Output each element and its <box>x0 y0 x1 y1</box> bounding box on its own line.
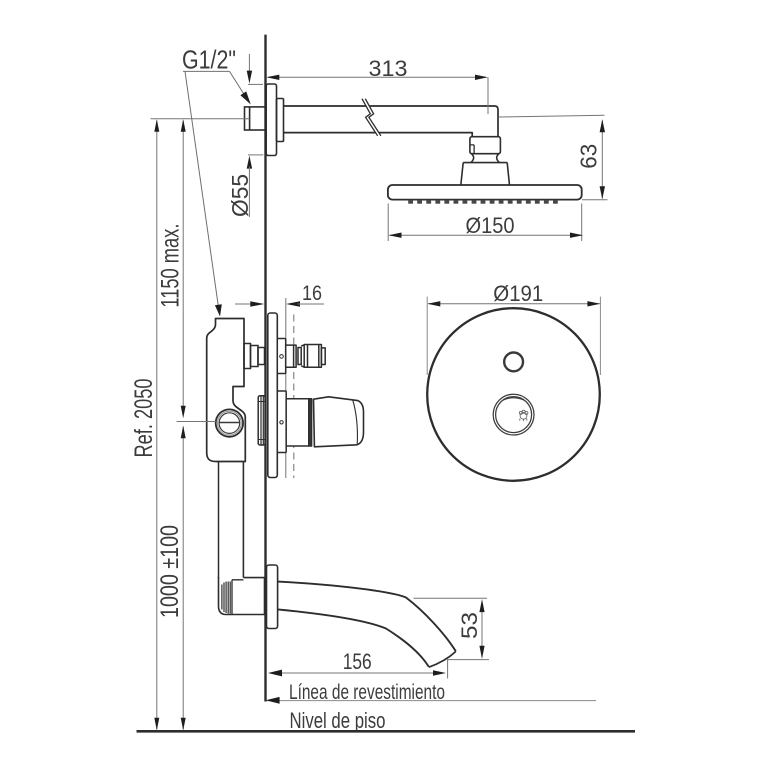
svg-text:63: 63 <box>576 144 602 169</box>
svg-text:156: 156 <box>343 649 372 674</box>
svg-text:313: 313 <box>369 56 408 81</box>
svg-text:Ø55: Ø55 <box>227 174 253 217</box>
svg-text:1000 ±100: 1000 ±100 <box>156 525 184 618</box>
svg-text:Ref. 2050: Ref. 2050 <box>130 379 158 458</box>
svg-text:16: 16 <box>302 282 322 305</box>
svg-text:G1/2": G1/2" <box>182 44 236 74</box>
svg-text:1150 max.: 1150 max. <box>157 224 185 308</box>
svg-text:Ø150: Ø150 <box>466 213 515 238</box>
svg-text:Ø191: Ø191 <box>493 281 543 306</box>
svg-text:53: 53 <box>457 612 482 639</box>
svg-text:Nivel de piso: Nivel de piso <box>290 708 386 733</box>
svg-text:Línea de revestimiento: Línea de revestimiento <box>289 680 445 704</box>
